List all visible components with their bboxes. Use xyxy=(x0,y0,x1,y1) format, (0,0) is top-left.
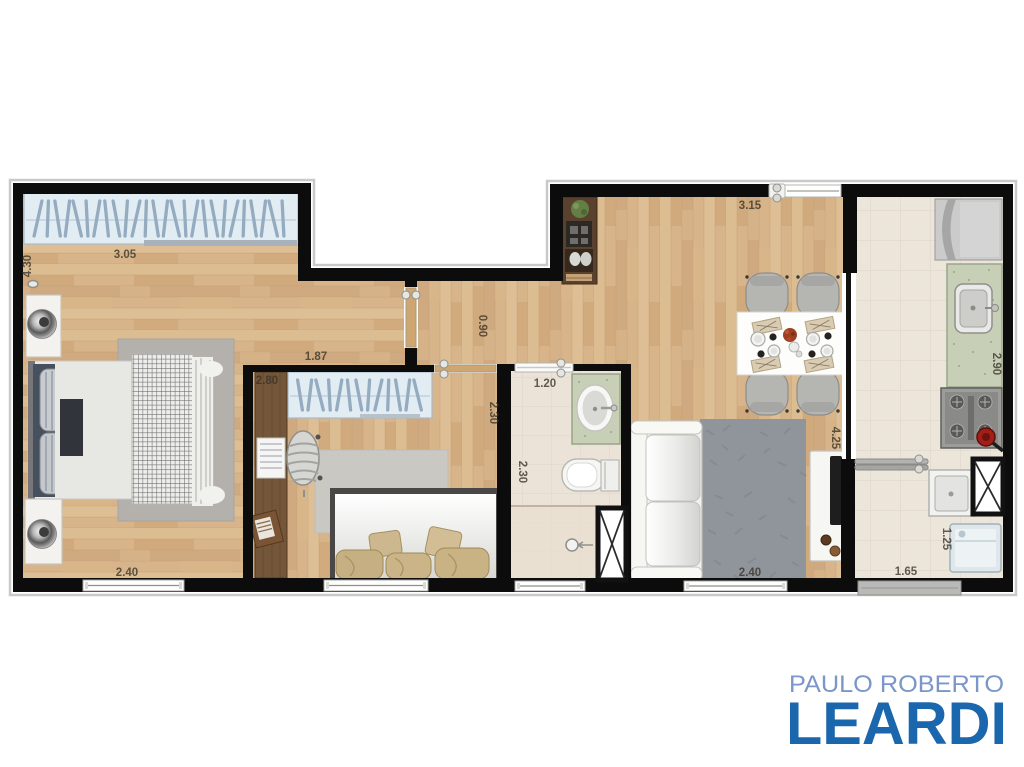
svg-text:4.25: 4.25 xyxy=(829,427,841,450)
svg-text:2.40: 2.40 xyxy=(739,567,761,579)
svg-text:2.40: 2.40 xyxy=(116,567,138,579)
svg-text:1.25: 1.25 xyxy=(940,528,952,551)
svg-text:2.30: 2.30 xyxy=(487,402,499,424)
svg-text:2.80: 2.80 xyxy=(256,375,278,387)
svg-text:2.30: 2.30 xyxy=(516,461,528,483)
svg-text:1.65: 1.65 xyxy=(895,566,918,578)
svg-text:LEARDI: LEARDI xyxy=(786,690,1007,757)
svg-text:1.87: 1.87 xyxy=(305,351,327,363)
svg-text:4.30: 4.30 xyxy=(22,255,34,277)
svg-text:3.15: 3.15 xyxy=(739,200,762,212)
svg-text:0.90: 0.90 xyxy=(476,315,488,337)
svg-text:1.20: 1.20 xyxy=(534,378,556,390)
svg-text:2.90: 2.90 xyxy=(990,353,1002,375)
svg-text:3.05: 3.05 xyxy=(114,249,137,261)
